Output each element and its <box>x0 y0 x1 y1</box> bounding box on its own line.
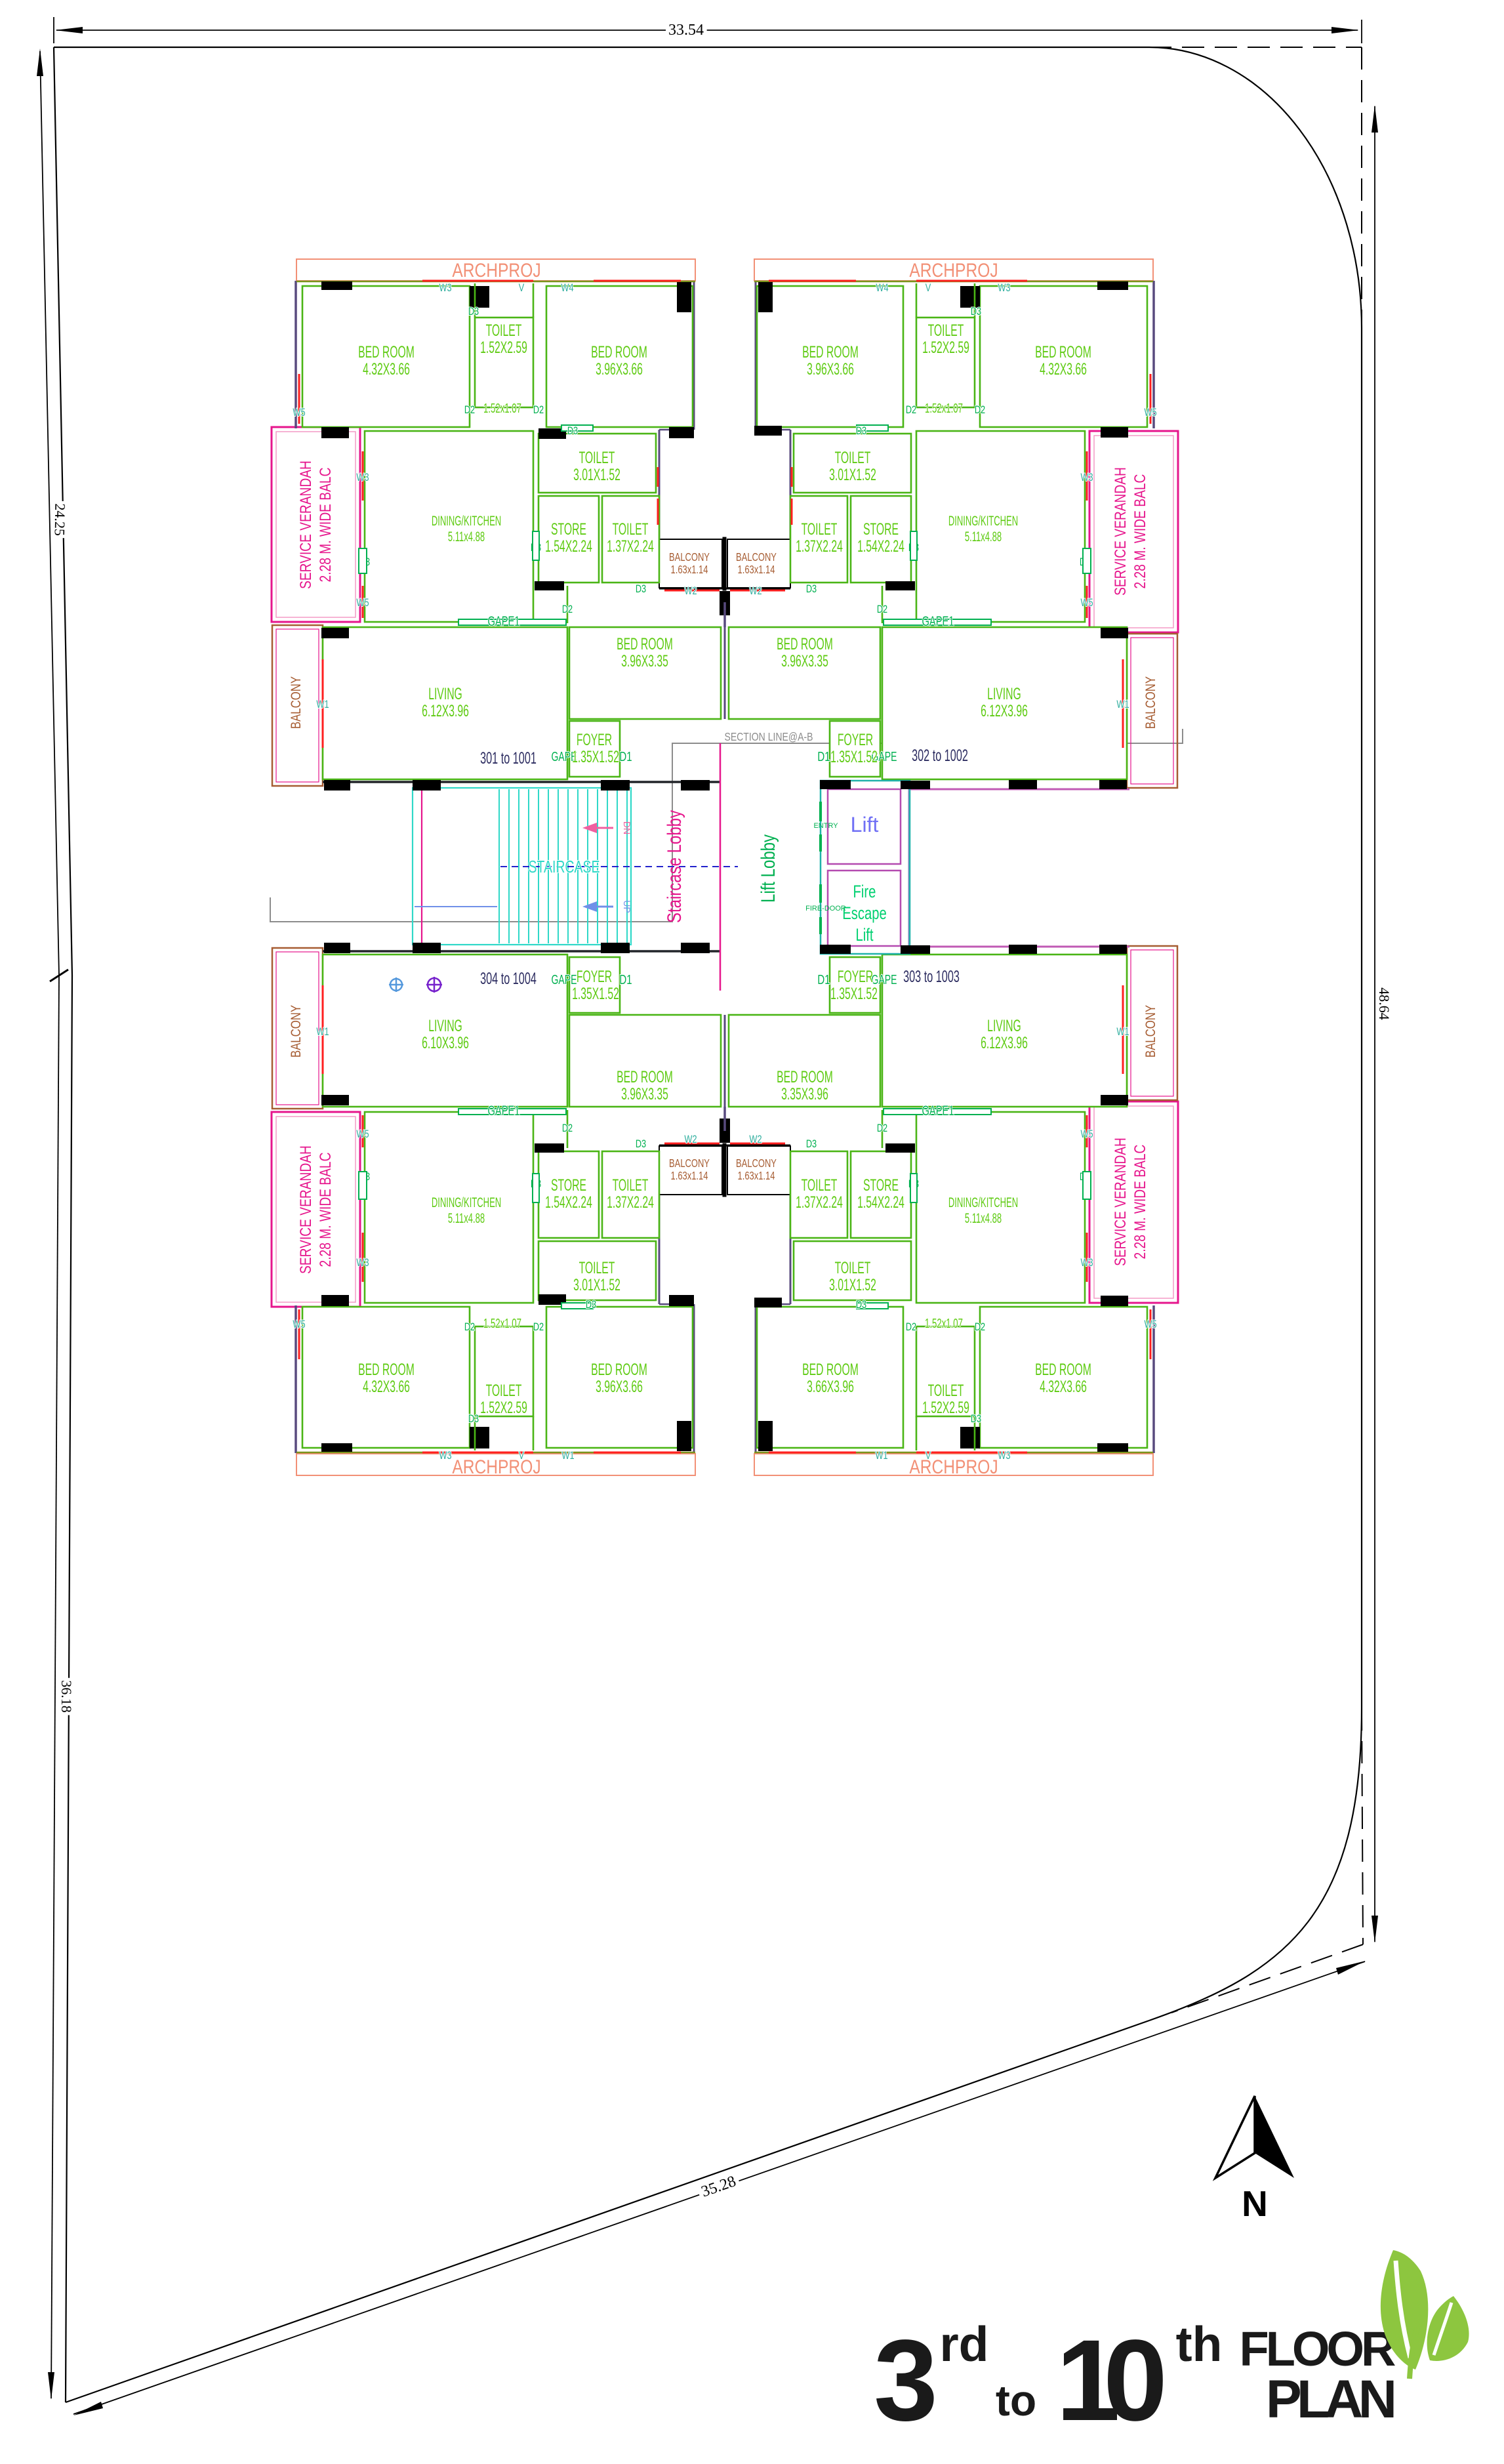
svg-text:5.11x4.88: 5.11x4.88 <box>965 1210 1002 1226</box>
svg-text:3.01X1.52: 3.01X1.52 <box>829 1276 876 1294</box>
svg-text:1.52x1.07: 1.52x1.07 <box>483 401 521 415</box>
svg-text:3.01X1.52: 3.01X1.52 <box>573 466 620 484</box>
svg-text:5.11x4.88: 5.11x4.88 <box>448 1210 485 1226</box>
svg-text:10: 10 <box>1056 2316 1168 2445</box>
svg-text:3.66X3.96: 3.66X3.96 <box>807 1378 854 1396</box>
svg-text:ARCHPROJ: ARCHPROJ <box>452 259 540 281</box>
svg-text:W3: W3 <box>1080 1256 1093 1269</box>
svg-text:SERVICE VERANDAH: SERVICE VERANDAH <box>296 1145 315 1274</box>
svg-text:TOILET: TOILET <box>613 520 649 539</box>
svg-text:D2: D2 <box>975 1321 985 1333</box>
svg-text:D2: D2 <box>533 403 544 416</box>
svg-text:Fire: Fire <box>853 882 876 902</box>
svg-text:W2: W2 <box>684 585 697 597</box>
svg-text:1.52X2.59: 1.52X2.59 <box>480 1399 527 1417</box>
svg-text:Lift: Lift <box>855 925 873 945</box>
svg-text:1.52x1.07: 1.52x1.07 <box>925 401 963 415</box>
svg-text:SECTION LINE@A-B: SECTION LINE@A-B <box>724 730 813 743</box>
svg-text:W3: W3 <box>356 1256 369 1269</box>
svg-text:D2: D2 <box>533 1321 544 1333</box>
svg-text:BALCONY: BALCONY <box>1143 1005 1158 1058</box>
svg-text:DN: DN <box>622 821 632 834</box>
svg-text:D3: D3 <box>468 1412 479 1425</box>
svg-text:1.37X2.24: 1.37X2.24 <box>796 537 843 556</box>
svg-text:4.32X3.66: 4.32X3.66 <box>363 1378 410 1396</box>
svg-text:W1: W1 <box>316 698 329 710</box>
svg-text:N: N <box>1242 2183 1268 2224</box>
svg-text:W2: W2 <box>749 585 762 597</box>
svg-text:D2: D2 <box>906 403 916 416</box>
svg-text:th: th <box>1176 2316 1223 2372</box>
svg-text:D2: D2 <box>562 603 573 615</box>
svg-text:BALCONY: BALCONY <box>736 1157 777 1170</box>
svg-text:1.52X2.59: 1.52X2.59 <box>480 339 527 357</box>
svg-text:ARCHPROJ: ARCHPROJ <box>452 1456 540 1478</box>
svg-text:1.35X1.52: 1.35X1.52 <box>572 748 619 766</box>
svg-text:1.35X1.52: 1.35X1.52 <box>830 985 878 1003</box>
svg-text:D2: D2 <box>877 603 887 615</box>
svg-text:1.52x1.07: 1.52x1.07 <box>925 1316 963 1330</box>
svg-text:D3: D3 <box>806 583 817 595</box>
svg-text:BED ROOM: BED ROOM <box>358 343 415 361</box>
svg-text:D3: D3 <box>856 424 866 437</box>
svg-text:DINING/KITCHEN: DINING/KITCHEN <box>432 1195 501 1210</box>
svg-text:TOILET: TOILET <box>486 1382 522 1400</box>
svg-text:W5: W5 <box>1080 1128 1093 1140</box>
svg-text:TOILET: TOILET <box>486 321 522 340</box>
svg-text:2.28 M. WIDE BALC: 2.28 M. WIDE BALC <box>1131 474 1149 589</box>
svg-text:301 to 1001: 301 to 1001 <box>480 750 537 768</box>
svg-text:TOILET: TOILET <box>613 1176 649 1195</box>
svg-text:Staircase Lobby: Staircase Lobby <box>662 810 685 923</box>
svg-text:W5: W5 <box>293 406 305 419</box>
svg-text:2.28 M. WIDE BALC: 2.28 M. WIDE BALC <box>316 468 335 583</box>
svg-text:STAIRCASE: STAIRCASE <box>528 857 600 876</box>
svg-text:W1: W1 <box>1116 1025 1129 1038</box>
svg-text:D3: D3 <box>806 1138 817 1150</box>
svg-text:W5: W5 <box>293 1318 305 1330</box>
svg-text:3.96X3.35: 3.96X3.35 <box>621 652 668 670</box>
svg-text:1.54X2.24: 1.54X2.24 <box>857 1193 904 1212</box>
svg-text:W4: W4 <box>876 281 888 294</box>
svg-text:6.12X3.96: 6.12X3.96 <box>981 702 1028 720</box>
svg-text:ENTRY: ENTRY <box>813 822 838 830</box>
svg-text:BED ROOM: BED ROOM <box>358 1361 415 1379</box>
svg-text:4.32X3.66: 4.32X3.66 <box>1040 1378 1087 1396</box>
svg-text:5.11x4.88: 5.11x4.88 <box>448 529 485 544</box>
svg-text:BALCONY: BALCONY <box>669 551 710 564</box>
svg-text:W5: W5 <box>356 596 369 609</box>
svg-text:STORE: STORE <box>863 1176 899 1195</box>
svg-text:TOILET: TOILET <box>928 1382 964 1400</box>
svg-text:W3: W3 <box>439 1449 451 1462</box>
svg-text:W2: W2 <box>749 1133 762 1145</box>
svg-text:ARCHPROJ: ARCHPROJ <box>909 259 998 281</box>
svg-text:FIRE-DOOR: FIRE-DOOR <box>805 905 846 913</box>
svg-text:W3: W3 <box>356 471 369 483</box>
svg-text:3.01X1.52: 3.01X1.52 <box>573 1276 620 1294</box>
svg-text:GAPE1: GAPE1 <box>922 1103 954 1118</box>
svg-text:DINING/KITCHEN: DINING/KITCHEN <box>948 513 1018 529</box>
svg-text:SERVICE VERANDAH: SERVICE VERANDAH <box>296 461 315 589</box>
svg-text:D3: D3 <box>586 1298 596 1311</box>
svg-text:TOILET: TOILET <box>928 321 964 340</box>
svg-text:GAPE1: GAPE1 <box>488 613 520 628</box>
svg-text:W5: W5 <box>1144 406 1156 419</box>
svg-text:GAPE1: GAPE1 <box>488 1103 520 1118</box>
svg-text:1.35X1.52: 1.35X1.52 <box>830 748 878 766</box>
svg-text:3.01X1.52: 3.01X1.52 <box>829 466 876 484</box>
svg-text:STORE: STORE <box>551 520 586 539</box>
svg-text:W1: W1 <box>316 1025 329 1038</box>
svg-text:D3: D3 <box>971 305 981 318</box>
svg-text:DINING/KITCHEN: DINING/KITCHEN <box>432 513 501 529</box>
svg-text:BED ROOM: BED ROOM <box>802 1361 859 1379</box>
svg-text:BED ROOM: BED ROOM <box>591 343 647 361</box>
svg-text:FLOOR: FLOOR <box>1240 2322 1396 2376</box>
svg-text:1.35X1.52: 1.35X1.52 <box>572 985 619 1003</box>
svg-text:1.54X2.24: 1.54X2.24 <box>545 1193 592 1212</box>
svg-text:36.18: 36.18 <box>58 1680 75 1713</box>
svg-text:LIVING: LIVING <box>428 1017 462 1035</box>
svg-text:1.37X2.24: 1.37X2.24 <box>607 537 654 556</box>
svg-text:1.52X2.59: 1.52X2.59 <box>922 1399 969 1417</box>
svg-text:D3: D3 <box>567 424 578 437</box>
svg-text:TOILET: TOILET <box>835 1259 871 1277</box>
svg-text:304 to 1004: 304 to 1004 <box>480 970 537 988</box>
svg-text:TOILET: TOILET <box>835 449 871 467</box>
svg-text:D2: D2 <box>975 403 985 416</box>
svg-text:GAPE1: GAPE1 <box>922 613 954 628</box>
svg-text:4.32X3.66: 4.32X3.66 <box>1040 360 1087 379</box>
svg-text:1.63x1.14: 1.63x1.14 <box>738 564 775 577</box>
svg-text:Escape: Escape <box>842 903 887 924</box>
svg-text:V: V <box>519 1449 524 1462</box>
svg-text:BED ROOM: BED ROOM <box>777 1068 833 1086</box>
svg-text:D1: D1 <box>619 972 632 987</box>
svg-text:BED ROOM: BED ROOM <box>1035 343 1091 361</box>
svg-text:6.10X3.96: 6.10X3.96 <box>422 1034 469 1052</box>
svg-text:BED ROOM: BED ROOM <box>617 1068 673 1086</box>
svg-text:SERVICE VERANDAH: SERVICE VERANDAH <box>1111 1138 1129 1266</box>
svg-text:D3: D3 <box>636 1138 646 1150</box>
svg-text:1.63x1.14: 1.63x1.14 <box>738 1170 775 1183</box>
svg-text:1.63x1.14: 1.63x1.14 <box>671 564 708 577</box>
svg-text:D3: D3 <box>636 583 646 595</box>
svg-text:D2: D2 <box>562 1122 573 1134</box>
svg-text:W4: W4 <box>561 281 573 294</box>
svg-text:to: to <box>996 2376 1036 2425</box>
svg-text:W3: W3 <box>998 1449 1010 1462</box>
svg-text:FOYER: FOYER <box>838 968 873 986</box>
svg-text:PLAN: PLAN <box>1266 2370 1397 2429</box>
svg-text:1.52x1.07: 1.52x1.07 <box>483 1316 521 1330</box>
svg-text:303 to 1003: 303 to 1003 <box>903 968 960 986</box>
svg-text:1.52X2.59: 1.52X2.59 <box>922 339 969 357</box>
svg-text:D2: D2 <box>464 403 475 416</box>
svg-text:2.28 M. WIDE BALC: 2.28 M. WIDE BALC <box>316 1153 335 1267</box>
svg-text:BED ROOM: BED ROOM <box>777 635 833 653</box>
svg-text:33.54: 33.54 <box>668 22 704 39</box>
svg-text:W1: W1 <box>561 1449 574 1462</box>
svg-text:BED ROOM: BED ROOM <box>617 635 673 653</box>
svg-text:3.96X3.66: 3.96X3.66 <box>596 1378 643 1396</box>
svg-text:BED ROOM: BED ROOM <box>802 343 859 361</box>
svg-text:BALCONY: BALCONY <box>289 1005 304 1058</box>
svg-text:LIVING: LIVING <box>987 685 1021 703</box>
svg-text:1.37X2.24: 1.37X2.24 <box>796 1193 843 1212</box>
svg-text:3.35X3.96: 3.35X3.96 <box>781 1085 828 1103</box>
svg-text:TOILET: TOILET <box>802 1176 838 1195</box>
svg-text:STORE: STORE <box>551 1176 586 1195</box>
svg-text:D2: D2 <box>877 1122 887 1134</box>
svg-text:3: 3 <box>874 2316 938 2445</box>
svg-text:3.96X3.66: 3.96X3.66 <box>596 360 643 379</box>
svg-text:48.64: 48.64 <box>1376 987 1392 1020</box>
svg-text:W3: W3 <box>439 281 451 294</box>
svg-text:2.28 M. WIDE BALC: 2.28 M. WIDE BALC <box>1131 1145 1149 1260</box>
svg-text:BALCONY: BALCONY <box>669 1157 710 1170</box>
svg-text:BED ROOM: BED ROOM <box>1035 1361 1091 1379</box>
svg-text:D3: D3 <box>468 305 479 318</box>
svg-text:3.96X3.35: 3.96X3.35 <box>781 652 828 670</box>
svg-text:V: V <box>925 1449 931 1462</box>
svg-text:3.96X3.35: 3.96X3.35 <box>621 1085 668 1103</box>
svg-text:D1: D1 <box>619 749 632 764</box>
svg-text:D1: D1 <box>817 972 830 987</box>
svg-text:DINING/KITCHEN: DINING/KITCHEN <box>948 1195 1018 1210</box>
svg-text:D3: D3 <box>856 1298 866 1311</box>
svg-text:STORE: STORE <box>863 520 899 539</box>
svg-text:BALCONY: BALCONY <box>289 676 304 729</box>
svg-text:D3: D3 <box>971 1412 981 1425</box>
svg-text:FOYER: FOYER <box>577 968 612 986</box>
svg-text:TOILET: TOILET <box>579 1259 615 1277</box>
svg-text:V: V <box>519 281 524 294</box>
svg-text:SERVICE VERANDAH: SERVICE VERANDAH <box>1111 467 1129 596</box>
svg-text:1.54X2.24: 1.54X2.24 <box>857 537 904 556</box>
svg-text:D2: D2 <box>906 1321 916 1333</box>
svg-text:W5: W5 <box>1080 596 1093 609</box>
svg-text:D1: D1 <box>817 749 830 764</box>
svg-text:W1: W1 <box>875 1449 887 1462</box>
svg-text:W5: W5 <box>1144 1318 1156 1330</box>
svg-text:Lift: Lift <box>851 813 879 836</box>
svg-text:FOYER: FOYER <box>577 731 612 749</box>
svg-text:3.96X3.66: 3.96X3.66 <box>807 360 854 379</box>
svg-text:1.54X2.24: 1.54X2.24 <box>545 537 592 556</box>
svg-text:V: V <box>925 281 931 294</box>
svg-text:TOILET: TOILET <box>802 520 838 539</box>
svg-text:1.37X2.24: 1.37X2.24 <box>607 1193 654 1212</box>
svg-text:ARCHPROJ: ARCHPROJ <box>909 1456 998 1478</box>
svg-text:BED ROOM: BED ROOM <box>591 1361 647 1379</box>
svg-text:W3: W3 <box>998 281 1010 294</box>
svg-text:5.11x4.88: 5.11x4.88 <box>965 529 1002 544</box>
svg-text:W2: W2 <box>684 1133 697 1145</box>
svg-text:4.32X3.66: 4.32X3.66 <box>363 360 410 379</box>
svg-text:W5: W5 <box>356 1128 369 1140</box>
svg-text:rd: rd <box>940 2316 989 2372</box>
svg-text:LIVING: LIVING <box>428 685 462 703</box>
svg-text:Lift Lobby: Lift Lobby <box>756 834 779 903</box>
svg-text:D2: D2 <box>464 1321 475 1333</box>
svg-text:BALCONY: BALCONY <box>1143 676 1158 729</box>
svg-text:6.12X3.96: 6.12X3.96 <box>981 1034 1028 1052</box>
svg-text:FOYER: FOYER <box>838 731 873 749</box>
svg-text:W1: W1 <box>1116 698 1129 710</box>
svg-text:W3: W3 <box>1080 471 1093 483</box>
svg-text:302 to 1002: 302 to 1002 <box>912 747 968 765</box>
svg-text:6.12X3.96: 6.12X3.96 <box>422 702 469 720</box>
svg-text:TOILET: TOILET <box>579 449 615 467</box>
svg-text:24.25: 24.25 <box>52 503 69 536</box>
svg-text:UP: UP <box>622 900 632 913</box>
svg-text:1.63x1.14: 1.63x1.14 <box>671 1170 708 1183</box>
svg-text:BALCONY: BALCONY <box>736 551 777 564</box>
svg-text:LIVING: LIVING <box>987 1017 1021 1035</box>
